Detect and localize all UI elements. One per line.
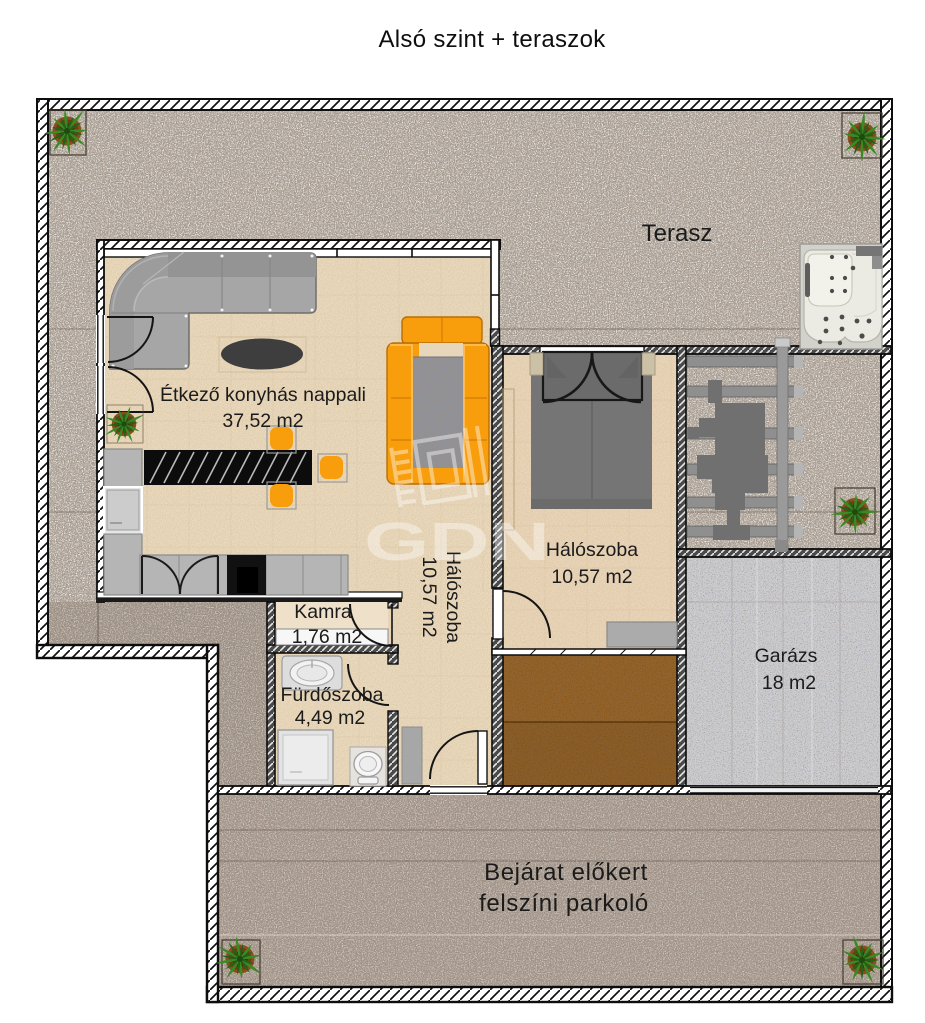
svg-text:Hálószoba: Hálószoba: [546, 539, 638, 561]
svg-text:GDN: GDN: [364, 512, 550, 572]
svg-text:Alsó szint + teraszok: Alsó szint + teraszok: [378, 26, 606, 53]
svg-text:Kamra: Kamra: [294, 601, 352, 623]
svg-text:felszíni parkoló: felszíni parkoló: [479, 890, 649, 917]
svg-text:37,52 m2: 37,52 m2: [222, 410, 303, 432]
svg-text:10,57 m2: 10,57 m2: [551, 566, 632, 588]
svg-text:Étkező konyhás nappali: Étkező konyhás nappali: [160, 383, 366, 406]
svg-text:Fürdőszoba: Fürdőszoba: [281, 684, 384, 706]
svg-text:Terasz: Terasz: [642, 220, 713, 247]
svg-text:Garázs: Garázs: [755, 645, 818, 667]
svg-text:18 m2: 18 m2: [762, 672, 816, 694]
svg-text:Bejárat előkert: Bejárat előkert: [484, 859, 648, 886]
svg-text:4,49 m2: 4,49 m2: [295, 707, 365, 729]
svg-text:1,76 m2: 1,76 m2: [292, 626, 362, 648]
